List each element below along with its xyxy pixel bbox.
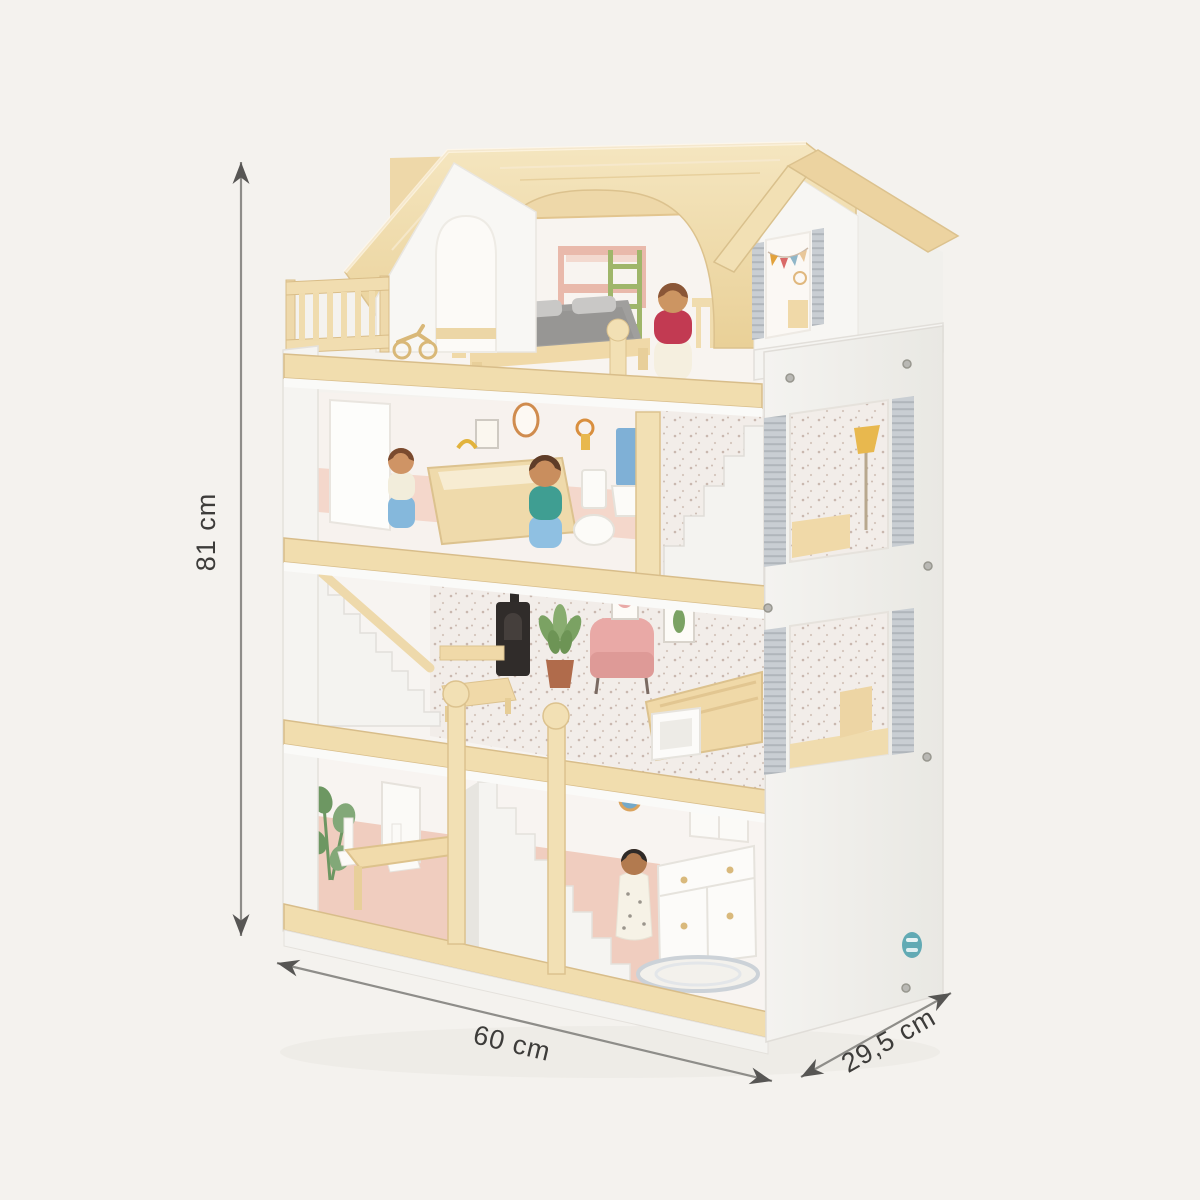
dollhouse-dimensions-illustration: 81 cm 60 cm 29,5 cm (0, 0, 1200, 1200)
peg-doll-red (654, 283, 692, 382)
shutter (764, 415, 786, 567)
brand-logo-sticker (902, 932, 922, 958)
dresser-decal (788, 300, 808, 328)
attic-newel-post (607, 319, 629, 382)
product-dimensions-figure: 81 cm 60 cm 29,5 cm (0, 0, 1200, 1200)
shutter (764, 627, 786, 775)
rug-decal (638, 957, 758, 991)
corner-post (636, 412, 660, 586)
peg-doll-dotted-dress (616, 849, 652, 940)
shutter (892, 608, 914, 755)
mirror-decal (514, 404, 538, 436)
right-side-panel (764, 326, 943, 1042)
gable-window-rail (436, 328, 496, 339)
sideboard (658, 846, 756, 968)
left-wall-edge (283, 346, 318, 935)
peg-doll-white-blue (388, 448, 415, 528)
bathroom-stairs (660, 404, 764, 586)
dollhouse (283, 143, 958, 1054)
back-window (330, 400, 390, 530)
shutter (812, 228, 824, 326)
peg-doll-teal (529, 455, 562, 548)
furniture-through-window (840, 686, 872, 738)
shutter (892, 396, 914, 547)
white-cube-table (652, 708, 700, 760)
picture-frame-decal (476, 420, 498, 448)
shutter (752, 242, 764, 340)
height-dimension-label: 81 cm (191, 493, 221, 572)
